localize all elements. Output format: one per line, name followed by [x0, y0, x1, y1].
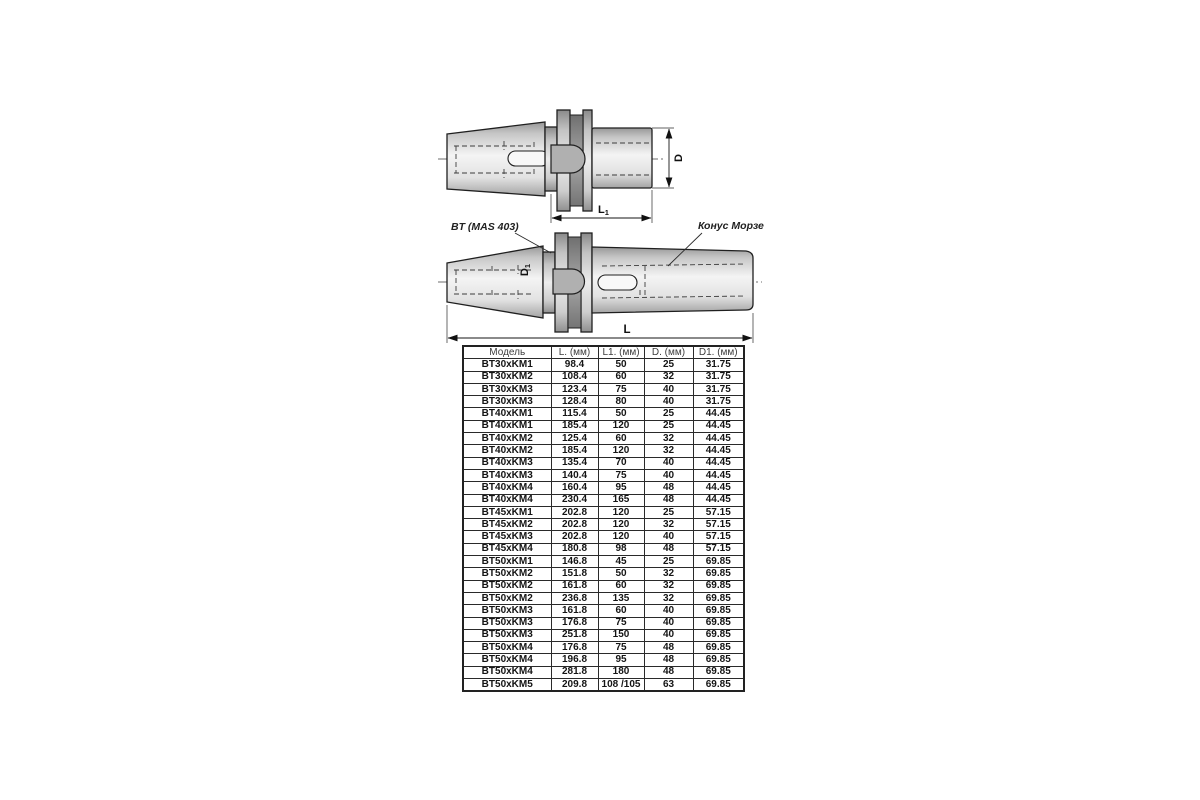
table-cell: BT50xKM2	[463, 592, 551, 604]
table-cell: BT40xKM3	[463, 469, 551, 481]
table-cell: 44.45	[693, 408, 744, 420]
col-header-d1: D1. (мм)	[693, 346, 744, 359]
table-row: BT40xKM1115.4502544.45	[463, 408, 744, 420]
table-cell: 75	[598, 383, 644, 395]
table-cell: 80	[598, 396, 644, 408]
table-row: BT30xKM3123.4754031.75	[463, 383, 744, 395]
table-row: BT40xKM4160.4954844.45	[463, 482, 744, 494]
table-row: BT50xKM3251.81504069.85	[463, 629, 744, 641]
table-cell: 176.8	[551, 642, 598, 654]
table-cell: 63	[644, 679, 693, 692]
table-row: BT45xKM1202.81202557.15	[463, 506, 744, 518]
table-cell: 48	[644, 642, 693, 654]
table-cell: 108.4	[551, 371, 598, 383]
table-cell: 180	[598, 666, 644, 678]
table-cell: BT45xKM3	[463, 531, 551, 543]
table-cell: 31.75	[693, 383, 744, 395]
drive-key	[553, 269, 585, 294]
table-cell: BT30xKM3	[463, 383, 551, 395]
table-cell: 40	[644, 605, 693, 617]
cylinder-body	[592, 128, 652, 188]
table-cell: 57.15	[693, 519, 744, 531]
table-cell: 196.8	[551, 654, 598, 666]
table-cell: 69.85	[693, 592, 744, 604]
table-cell: 60	[598, 371, 644, 383]
extraction-slot	[598, 275, 637, 290]
table-cell: 125.4	[551, 433, 598, 445]
table-cell: 32	[644, 592, 693, 604]
table-row: BT45xKM3202.81204057.15	[463, 531, 744, 543]
table-row: BT40xKM3135.4704044.45	[463, 457, 744, 469]
table-cell: 48	[644, 482, 693, 494]
table-cell: 57.15	[693, 506, 744, 518]
table-cell: 25	[644, 408, 693, 420]
table-row: BT30xKM2108.4603231.75	[463, 371, 744, 383]
table-cell: 60	[598, 580, 644, 592]
table-cell: 48	[644, 654, 693, 666]
table-row: BT40xKM1185.41202544.45	[463, 420, 744, 432]
page: D L1	[0, 0, 1200, 800]
table-cell: BT50xKM2	[463, 568, 551, 580]
table-cell: 120	[598, 445, 644, 457]
table-cell: 70	[598, 457, 644, 469]
table-cell: 140.4	[551, 469, 598, 481]
table-cell: BT50xKM3	[463, 617, 551, 629]
table-cell: 57.15	[693, 531, 744, 543]
table-cell: BT30xKM1	[463, 359, 551, 371]
table-cell: 75	[598, 617, 644, 629]
table-cell: BT40xKM4	[463, 494, 551, 506]
table-cell: 75	[598, 642, 644, 654]
table-row: BT50xKM1146.8452569.85	[463, 556, 744, 568]
table-row: BT50xKM2236.81353269.85	[463, 592, 744, 604]
table-cell: 44.45	[693, 482, 744, 494]
dim-label-l: L	[623, 324, 630, 336]
drawing-top-bt-holder: D L1	[438, 110, 685, 223]
table-cell: 32	[644, 519, 693, 531]
table-cell: 40	[644, 617, 693, 629]
col-header-l1: L1. (мм)	[598, 346, 644, 359]
table-cell: 146.8	[551, 556, 598, 568]
table-row: BT40xKM3140.4754044.45	[463, 469, 744, 481]
table-cell: 160.4	[551, 482, 598, 494]
table-cell: BT40xKM3	[463, 457, 551, 469]
table-row: BT45xKM4180.8984857.15	[463, 543, 744, 555]
label-morse-taper: Конус Морзе	[698, 220, 764, 232]
table-row: BT50xKM2151.8503269.85	[463, 568, 744, 580]
table-cell: 31.75	[693, 371, 744, 383]
label-bt-mas403: BT (MAS 403)	[451, 221, 519, 233]
table-cell: 40	[644, 396, 693, 408]
table-cell: 31.75	[693, 359, 744, 371]
table-cell: 185.4	[551, 445, 598, 457]
table-cell: 50	[598, 408, 644, 420]
table-cell: 69.85	[693, 642, 744, 654]
technical-drawings: D L1	[430, 80, 770, 344]
table-cell: 25	[644, 556, 693, 568]
table-cell: 161.8	[551, 605, 598, 617]
table-cell: BT50xKM3	[463, 605, 551, 617]
table-cell: 69.85	[693, 568, 744, 580]
table-cell: 32	[644, 371, 693, 383]
table-cell: 60	[598, 605, 644, 617]
table-cell: 281.8	[551, 666, 598, 678]
table-cell: 32	[644, 445, 693, 457]
table-cell: 185.4	[551, 420, 598, 432]
table-row: BT50xKM4176.8754869.85	[463, 642, 744, 654]
table-cell: 95	[598, 654, 644, 666]
table-cell: 120	[598, 420, 644, 432]
table-cell: BT50xKM3	[463, 629, 551, 641]
table-cell: BT40xKM4	[463, 482, 551, 494]
table-row: BT50xKM4281.81804869.85	[463, 666, 744, 678]
table-row: BT40xKM2125.4603244.45	[463, 433, 744, 445]
table-cell: 176.8	[551, 617, 598, 629]
table-cell: 202.8	[551, 519, 598, 531]
table-cell: 123.4	[551, 383, 598, 395]
drive-slot	[508, 151, 549, 166]
table-cell: 230.4	[551, 494, 598, 506]
table-cell: BT50xKM4	[463, 666, 551, 678]
table-cell: 108 /105	[598, 679, 644, 692]
table-cell: 48	[644, 494, 693, 506]
table-cell: 25	[644, 359, 693, 371]
table-cell: BT50xKM4	[463, 654, 551, 666]
table-cell: 75	[598, 469, 644, 481]
table-cell: 57.15	[693, 543, 744, 555]
table-cell: 120	[598, 531, 644, 543]
table-cell: 44.45	[693, 433, 744, 445]
table-cell: 44.45	[693, 494, 744, 506]
table-cell: 69.85	[693, 605, 744, 617]
table-cell: 180.8	[551, 543, 598, 555]
table-cell: 128.4	[551, 396, 598, 408]
table-cell: 69.85	[693, 654, 744, 666]
table-cell: 69.85	[693, 580, 744, 592]
table-cell: 209.8	[551, 679, 598, 692]
dim-label-d: D	[673, 154, 685, 162]
table-cell: 120	[598, 519, 644, 531]
table-cell: 44.45	[693, 457, 744, 469]
table-cell: 48	[644, 666, 693, 678]
table-cell: 32	[644, 568, 693, 580]
table-row: BT50xKM5209.8108 /1056369.85	[463, 679, 744, 692]
table-cell: 48	[644, 543, 693, 555]
table-cell: 69.85	[693, 617, 744, 629]
table-cell: 25	[644, 506, 693, 518]
table-cell: 40	[644, 629, 693, 641]
table-cell: 40	[644, 531, 693, 543]
table-cell: BT50xKM5	[463, 679, 551, 692]
table-cell: 251.8	[551, 629, 598, 641]
table-cell: 161.8	[551, 580, 598, 592]
table-cell: 44.45	[693, 445, 744, 457]
table-cell: 40	[644, 469, 693, 481]
table-row: BT30xKM198.4502531.75	[463, 359, 744, 371]
table-cell: 32	[644, 433, 693, 445]
table-row: BT40xKM4230.41654844.45	[463, 494, 744, 506]
table-cell: 165	[598, 494, 644, 506]
table-cell: BT50xKM1	[463, 556, 551, 568]
table-cell: 69.85	[693, 629, 744, 641]
drive-key	[551, 145, 585, 173]
table-cell: BT30xKM2	[463, 371, 551, 383]
col-header-model: Модель	[463, 346, 551, 359]
table-header-row: Модель L. (мм) L1. (мм) D. (мм) D1. (мм)	[463, 346, 744, 359]
table-cell: 32	[644, 580, 693, 592]
table-cell: 40	[644, 383, 693, 395]
table-cell: BT40xKM1	[463, 420, 551, 432]
table-row: BT30xKM3128.4804031.75	[463, 396, 744, 408]
table-cell: BT45xKM1	[463, 506, 551, 518]
spec-table: Модель L. (мм) L1. (мм) D. (мм) D1. (мм)…	[462, 345, 745, 692]
table-row: BT50xKM4196.8954869.85	[463, 654, 744, 666]
table-cell: 60	[598, 433, 644, 445]
table-cell: 236.8	[551, 592, 598, 604]
table-cell: 120	[598, 506, 644, 518]
table-cell: 50	[598, 359, 644, 371]
table-cell: BT45xKM2	[463, 519, 551, 531]
table-cell: 50	[598, 568, 644, 580]
table-cell: 202.8	[551, 531, 598, 543]
spec-table-body: BT30xKM198.4502531.75BT30xKM2108.4603231…	[463, 359, 744, 692]
table-cell: 95	[598, 482, 644, 494]
table-cell: BT45xKM4	[463, 543, 551, 555]
table-cell: 69.85	[693, 679, 744, 692]
table-cell: 69.85	[693, 666, 744, 678]
dim-label-l1: L1	[598, 204, 609, 217]
table-row: BT40xKM2185.41203244.45	[463, 445, 744, 457]
table-cell: 44.45	[693, 420, 744, 432]
table-cell: 202.8	[551, 506, 598, 518]
table-cell: BT30xKM3	[463, 396, 551, 408]
table-cell: 115.4	[551, 408, 598, 420]
table-row: BT50xKM3176.8754069.85	[463, 617, 744, 629]
table-cell: 69.85	[693, 556, 744, 568]
col-header-l: L. (мм)	[551, 346, 598, 359]
table-cell: 135.4	[551, 457, 598, 469]
table-cell: BT50xKM4	[463, 642, 551, 654]
table-cell: 45	[598, 556, 644, 568]
table-cell: 135	[598, 592, 644, 604]
col-header-d: D. (мм)	[644, 346, 693, 359]
table-cell: 31.75	[693, 396, 744, 408]
table-cell: 98.4	[551, 359, 598, 371]
bt-taper-cone	[447, 246, 543, 318]
table-cell: 150	[598, 629, 644, 641]
table-cell: BT40xKM2	[463, 433, 551, 445]
table-row: BT45xKM2202.81203257.15	[463, 519, 744, 531]
table-cell: 25	[644, 420, 693, 432]
table-cell: BT40xKM1	[463, 408, 551, 420]
table-cell: BT40xKM2	[463, 445, 551, 457]
table-cell: 40	[644, 457, 693, 469]
table-cell: BT50xKM2	[463, 580, 551, 592]
table-cell: 98	[598, 543, 644, 555]
table-row: BT50xKM3161.8604069.85	[463, 605, 744, 617]
table-cell: 151.8	[551, 568, 598, 580]
table-row: BT50xKM2161.8603269.85	[463, 580, 744, 592]
drawing-bottom-bt-morse-holder: L D1 BT (MAS 403) Конус Морзе	[438, 220, 764, 343]
table-cell: 44.45	[693, 469, 744, 481]
